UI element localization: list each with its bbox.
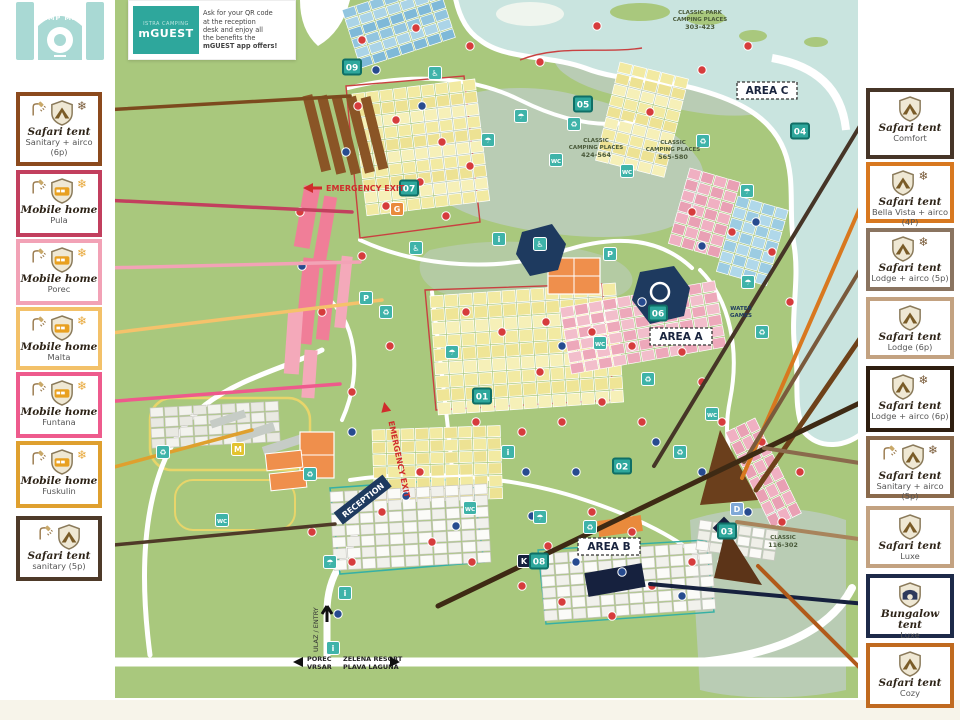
red-marker xyxy=(536,368,544,376)
red-marker xyxy=(628,528,636,536)
beach-top xyxy=(496,2,564,26)
svg-text:☂: ☂ xyxy=(744,278,751,287)
svg-text:WC: WC xyxy=(622,170,632,176)
legend-item-icons: ❄ xyxy=(20,449,98,476)
svg-text:i: i xyxy=(332,644,335,653)
facility-icon-badge: ☂ xyxy=(742,276,755,289)
red-marker xyxy=(608,612,616,620)
svg-text:CAMP MAP: CAMP MAP xyxy=(36,14,84,22)
svg-text:WC: WC xyxy=(707,413,717,419)
shower-icon xyxy=(31,449,47,467)
red-marker xyxy=(688,558,696,566)
numbered-badge-08: 08 xyxy=(530,554,548,569)
facility-icon-badge: WC xyxy=(594,337,607,350)
red-marker xyxy=(518,428,526,436)
red-marker xyxy=(518,582,526,590)
svg-text:P: P xyxy=(607,250,613,259)
legend-item-icons: ❄ xyxy=(20,315,98,342)
svg-text:01: 01 xyxy=(476,393,489,403)
red-marker xyxy=(588,328,596,336)
facility-icon-badge: ♿ xyxy=(534,238,547,251)
letter-badge-G: G xyxy=(391,203,404,216)
svg-text:WC: WC xyxy=(217,519,227,525)
camp-map-logo-graphic: CAMP MAP xyxy=(8,0,112,64)
blue-marker xyxy=(452,522,460,530)
legend-item-subtitle: Malta xyxy=(20,353,98,363)
legend-item-subtitle: Lodge + airco (6p) xyxy=(870,412,950,422)
blue-marker xyxy=(522,468,530,476)
red-marker xyxy=(386,342,394,350)
legend-item-icons: ❄ xyxy=(870,444,950,471)
svg-text:116-302: 116-302 xyxy=(768,541,798,549)
legend-item-title: Bungalow tent xyxy=(870,609,950,631)
facility-icon-badge: ☂ xyxy=(515,110,528,123)
facility-icon-badge: WC xyxy=(706,408,719,421)
red-marker xyxy=(382,202,390,210)
road-destination-labels: POREC VRSAR ZELENA RESORT PLAVA LAGUNA xyxy=(293,655,403,671)
snowflake-icon: ❄ xyxy=(928,444,938,456)
legend-item-subtitle: Bella Vista + airco (4P) xyxy=(870,208,950,227)
svg-text:♻: ♻ xyxy=(382,308,389,317)
svg-text:AREA B: AREA B xyxy=(587,541,630,553)
tent-shield-icon xyxy=(50,100,74,126)
svg-text:♻: ♻ xyxy=(570,120,577,129)
svg-text:☂: ☂ xyxy=(326,558,333,567)
numbered-badge-01: 01 xyxy=(473,389,491,404)
legend-item-left-6: Safari tentsanitary (5p) xyxy=(16,516,102,581)
camp-map: ♿☂♻WC♻☂i♿PWC♻WC♻P♻☂iWC☂♻☂♻♿☂i♻WC☂♻WCiGMD… xyxy=(0,0,960,720)
svg-text:WATER: WATER xyxy=(730,306,752,312)
legend-item-icons xyxy=(20,524,98,551)
red-marker xyxy=(412,24,420,32)
mguest-line: desk and enjoy all xyxy=(203,26,277,34)
facility-icon-badge: ☂ xyxy=(741,185,754,198)
mguest-line: Ask for your QR code xyxy=(203,9,277,17)
shower-icon xyxy=(38,524,54,542)
facility-icon-badge: P xyxy=(360,292,373,305)
svg-text:POREC: POREC xyxy=(307,655,332,663)
facility-icon-badge: i xyxy=(493,233,506,246)
blue-marker xyxy=(572,558,580,566)
shower-icon xyxy=(31,315,47,333)
legend-item-right-1: ❄Safari tentBella Vista + airco (4P) xyxy=(866,162,954,223)
svg-text:♻: ♻ xyxy=(758,328,765,337)
shower-icon xyxy=(882,444,898,462)
facility-icon-badge: ♻ xyxy=(697,135,710,148)
facility-icon-badge: ♻ xyxy=(304,468,317,481)
facility-icon-badge: ♻ xyxy=(568,118,581,131)
facility-icon-badge: ♻ xyxy=(756,326,769,339)
snowflake-icon: ❄ xyxy=(77,449,87,461)
svg-text:♻: ♻ xyxy=(159,448,166,457)
legend-item-right-8: Safari tentCozy xyxy=(866,643,954,708)
legend-item-right-5: ❄Safari tentSanitary + airco (5p) xyxy=(866,436,954,498)
legend-item-subtitle: Porec xyxy=(20,285,98,295)
legend-item-subtitle: Luxe xyxy=(870,552,950,562)
legend-item-right-4: ❄Safari tentLodge + airco (6p) xyxy=(866,366,954,432)
red-marker xyxy=(688,208,696,216)
blue-marker xyxy=(342,148,350,156)
tent-shield-icon xyxy=(901,444,925,470)
shower-icon xyxy=(31,178,47,196)
facility-icon-badge: ♻ xyxy=(157,446,170,459)
area-c-label: AREA C xyxy=(737,82,797,99)
svg-text:CLASSIC PARK: CLASSIC PARK xyxy=(678,10,722,16)
snowflake-icon: ❄ xyxy=(918,170,928,182)
svg-text:02: 02 xyxy=(616,463,629,473)
facility-icon-badge: ☂ xyxy=(482,134,495,147)
red-marker xyxy=(728,228,736,236)
mguest-label: mGUEST xyxy=(138,27,193,40)
red-marker xyxy=(466,162,474,170)
svg-text:GAMES: GAMES xyxy=(730,313,752,319)
red-marker xyxy=(536,58,544,66)
blue-marker xyxy=(752,218,760,226)
svg-text:09: 09 xyxy=(346,64,359,74)
shower-icon xyxy=(31,380,47,398)
legend-item-left-3: ❄Mobile homeMalta xyxy=(16,307,102,370)
tent-shield-icon xyxy=(57,524,81,550)
mobile-shield-icon xyxy=(50,380,74,406)
legend-item-icons: ❄ xyxy=(870,170,950,197)
svg-text:G: G xyxy=(394,205,401,214)
svg-text:08: 08 xyxy=(533,558,546,568)
mguest-line: mGUEST app offers! xyxy=(203,42,277,50)
legend-item-left-5: ❄Mobile homeFuskulin xyxy=(16,441,102,508)
bottom-strip xyxy=(0,700,960,720)
blue-marker xyxy=(372,66,380,74)
snowflake-icon: ❄ xyxy=(918,236,928,248)
facility-icon-badge: ♻ xyxy=(584,521,597,534)
blue-marker xyxy=(348,428,356,436)
svg-text:AREA A: AREA A xyxy=(659,331,703,343)
red-marker xyxy=(638,418,646,426)
legend-item-subtitle: Fuskulin xyxy=(20,487,98,497)
svg-text:WC: WC xyxy=(595,342,605,348)
legend-item-icons: ❄ xyxy=(20,247,98,274)
snowflake-icon: ❄ xyxy=(918,374,928,386)
red-marker xyxy=(786,298,794,306)
facility-icon-badge: ☂ xyxy=(324,556,337,569)
facility-icon-badge: WC xyxy=(621,165,634,178)
facility-icon-badge: i xyxy=(339,587,352,600)
blue-marker xyxy=(572,468,580,476)
legend-item-subtitle: Funtana xyxy=(20,418,98,428)
legend-item-subtitle: Lodge (6p) xyxy=(870,343,950,353)
svg-text:06: 06 xyxy=(652,310,665,320)
svg-text:AREA C: AREA C xyxy=(746,85,789,97)
mobile-shield-icon xyxy=(50,449,74,475)
legend-item-right-7: Bungalow tentLuxe xyxy=(866,574,954,638)
mguest-description: Ask for your QR code at the reception de… xyxy=(203,9,280,50)
island xyxy=(610,3,670,21)
area-a-label: AREA A xyxy=(650,328,712,345)
svg-text:♿: ♿ xyxy=(412,244,419,253)
red-marker xyxy=(768,248,776,256)
red-marker xyxy=(598,398,606,406)
svg-text:☂: ☂ xyxy=(517,112,524,121)
svg-text:CLASSIC: CLASSIC xyxy=(583,138,609,144)
legend-item-left-1: ❄Mobile homePula xyxy=(16,170,102,237)
blue-marker xyxy=(652,438,660,446)
snowflake-icon: ❄ xyxy=(77,100,87,112)
legend-item-subtitle: Luxe xyxy=(870,631,950,641)
red-marker xyxy=(378,508,386,516)
snowflake-icon: ❄ xyxy=(77,380,87,392)
red-marker xyxy=(498,328,506,336)
svg-text:K: K xyxy=(521,557,528,566)
red-marker xyxy=(796,468,804,476)
facility-icon-badge: i xyxy=(502,446,515,459)
facility-icon-badge: P xyxy=(604,248,617,261)
red-marker xyxy=(358,36,366,44)
red-marker xyxy=(718,418,726,426)
svg-text:M: M xyxy=(234,445,242,454)
legend-item-subtitle: Cozy xyxy=(870,689,950,699)
legend-item-left-4: ❄Mobile homeFuntana xyxy=(16,372,102,438)
letter-badge-M: M xyxy=(232,443,245,456)
shower-icon xyxy=(31,100,47,118)
red-marker xyxy=(466,42,474,50)
legend-item-icons: ❄ xyxy=(20,178,98,205)
red-marker xyxy=(442,212,450,220)
numbered-badge-05: 05 xyxy=(574,97,592,112)
legend-item-icons xyxy=(870,96,950,123)
red-marker xyxy=(308,528,316,536)
legend-item-subtitle: Comfort xyxy=(870,134,950,144)
bungalow-shield-icon xyxy=(898,582,922,608)
svg-text:♻: ♻ xyxy=(676,448,683,457)
svg-text:04: 04 xyxy=(794,128,807,138)
mguest-line: the benefits the xyxy=(203,34,277,42)
red-marker xyxy=(354,102,362,110)
facility-icon-badge: i xyxy=(327,642,340,655)
mguest-info-card: ISTRA CAMPING mGUEST Ask for your QR cod… xyxy=(128,0,296,60)
svg-text:D: D xyxy=(734,505,741,514)
snowflake-icon: ❄ xyxy=(77,315,87,327)
legend-item-icons xyxy=(870,305,950,332)
blue-marker xyxy=(744,508,752,516)
legend-item-subtitle: Pula xyxy=(20,216,98,226)
blue-marker xyxy=(334,610,342,618)
svg-text:☂: ☂ xyxy=(448,348,455,357)
legend-item-icons: ❄ xyxy=(20,380,98,407)
legend-item-icons xyxy=(870,582,950,609)
svg-text:P: P xyxy=(363,294,369,303)
letter-badge-D: D xyxy=(731,503,744,516)
facility-icon-badge: ♿ xyxy=(410,242,423,255)
svg-text:EMERGENCY EXIT: EMERGENCY EXIT xyxy=(326,184,405,193)
blue-marker xyxy=(558,342,566,350)
legend-item-right-2: ❄Safari tentLodge + airco (5p) xyxy=(866,228,954,291)
red-marker xyxy=(588,508,596,516)
svg-text:VRSAR: VRSAR xyxy=(307,663,332,671)
mobile-shield-icon xyxy=(50,315,74,341)
red-marker xyxy=(438,138,446,146)
svg-text:☂: ☂ xyxy=(484,136,491,145)
red-marker xyxy=(698,66,706,74)
blue-marker xyxy=(418,102,426,110)
svg-text:07: 07 xyxy=(403,185,416,195)
legend-item-right-3: Safari tentLodge (6p) xyxy=(866,297,954,359)
blue-marker xyxy=(678,592,686,600)
legend-item-right-6: Safari tentLuxe xyxy=(866,506,954,568)
tent-shield-icon xyxy=(898,96,922,122)
svg-text:424-564: 424-564 xyxy=(581,151,611,159)
tent-shield-icon xyxy=(898,651,922,677)
legend-item-subtitle: Lodge + airco (5p) xyxy=(870,274,950,284)
red-marker xyxy=(462,308,470,316)
legend-item-subtitle: Sanitary + airco (5p) xyxy=(870,482,950,501)
facility-icon-badge: ♻ xyxy=(642,373,655,386)
svg-text:303-423: 303-423 xyxy=(685,23,715,31)
red-marker xyxy=(348,558,356,566)
mguest-line: at the reception xyxy=(203,18,277,26)
svg-text:☂: ☂ xyxy=(536,513,543,522)
red-marker xyxy=(744,42,752,50)
facility-icon-badge: WC xyxy=(464,502,477,515)
svg-text:♻: ♻ xyxy=(644,375,651,384)
shower-icon xyxy=(31,247,47,265)
red-marker xyxy=(348,388,356,396)
svg-text:CLASSIC: CLASSIC xyxy=(660,140,686,146)
mobile-shield-icon xyxy=(50,247,74,273)
legend-item-subtitle: sanitary (5p) xyxy=(20,562,98,572)
legend-item-icons: ❄ xyxy=(870,236,950,263)
numbered-badge-02: 02 xyxy=(613,459,631,474)
facility-icon-badge: ♿ xyxy=(429,67,442,80)
letter-badge-K: K xyxy=(518,555,531,568)
blue-marker xyxy=(618,568,626,576)
legend-item-icons: ❄ xyxy=(20,100,98,127)
red-marker xyxy=(646,108,654,116)
red-marker xyxy=(468,558,476,566)
facility-icon-badge: WC xyxy=(550,154,563,167)
svg-text:♿: ♿ xyxy=(431,69,438,78)
legend-item-right-0: Safari tentComfort xyxy=(866,88,954,159)
svg-text:05: 05 xyxy=(577,101,590,111)
legend-item-icons: ❄ xyxy=(870,374,950,401)
legend-item-subtitle: Sanitary + airco (6p) xyxy=(20,138,98,157)
numbered-badge-09: 09 xyxy=(343,60,361,75)
svg-text:♻: ♻ xyxy=(586,523,593,532)
tent-shield-icon xyxy=(898,305,922,331)
camp-map-logo: CAMP MAP xyxy=(8,0,112,64)
island xyxy=(739,30,767,42)
svg-text:i: i xyxy=(498,235,501,244)
facility-icon-badge: ☂ xyxy=(446,346,459,359)
svg-text:WC: WC xyxy=(551,159,561,165)
snowflake-icon: ❄ xyxy=(77,178,87,190)
legend-item-icons xyxy=(870,514,950,541)
numbered-badge-04: 04 xyxy=(791,124,809,139)
svg-text:03: 03 xyxy=(721,528,734,538)
svg-text:♻: ♻ xyxy=(699,137,706,146)
facility-icon-badge: ♻ xyxy=(674,446,687,459)
tent-shield-icon xyxy=(891,374,915,400)
svg-text:565-580: 565-580 xyxy=(658,153,688,161)
blue-marker xyxy=(638,298,646,306)
red-marker xyxy=(358,252,366,260)
island xyxy=(804,37,828,47)
svg-text:♿: ♿ xyxy=(536,240,543,249)
red-marker xyxy=(392,116,400,124)
mobile-shield-icon xyxy=(50,178,74,204)
red-marker xyxy=(778,518,786,526)
svg-text:i: i xyxy=(507,448,510,457)
red-marker xyxy=(472,418,480,426)
numbered-badge-06: 06 xyxy=(649,306,667,321)
facility-icon-badge: ☂ xyxy=(534,511,547,524)
camp-map-poster: ♿☂♻WC♻☂i♿PWC♻WC♻P♻☂iWC☂♻☂♻♿☂i♻WC☂♻WCiGMD… xyxy=(0,0,960,720)
facility-icon-badge: WC xyxy=(216,514,229,527)
red-marker xyxy=(428,538,436,546)
red-marker xyxy=(628,342,636,350)
svg-text:i: i xyxy=(344,589,347,598)
legend-item-left-2: ❄Mobile homePorec xyxy=(16,239,102,305)
svg-text:WC: WC xyxy=(465,507,475,513)
area-b-label: AREA B xyxy=(578,538,640,555)
tent-shield-icon xyxy=(891,236,915,262)
blue-marker xyxy=(698,242,706,250)
red-marker xyxy=(416,468,424,476)
red-marker xyxy=(558,418,566,426)
legend-item-icons xyxy=(870,651,950,678)
facility-icon-badge: ♻ xyxy=(380,306,393,319)
red-marker xyxy=(542,318,550,326)
red-marker xyxy=(593,22,601,30)
legend-item-left-0: ❄Safari tentSanitary + airco (6p) xyxy=(16,92,102,166)
snowflake-icon: ❄ xyxy=(77,247,87,259)
red-marker xyxy=(678,348,686,356)
tent-shield-icon xyxy=(898,514,922,540)
svg-text:☂: ☂ xyxy=(743,187,750,196)
tent-shield-icon xyxy=(891,170,915,196)
svg-text:♻: ♻ xyxy=(306,470,313,479)
numbered-badge-03: 03 xyxy=(718,524,736,539)
svg-text:ULAZ / ENTRY: ULAZ / ENTRY xyxy=(312,607,320,652)
mguest-logo-tile: ISTRA CAMPING mGUEST xyxy=(133,6,199,54)
red-marker xyxy=(558,598,566,606)
